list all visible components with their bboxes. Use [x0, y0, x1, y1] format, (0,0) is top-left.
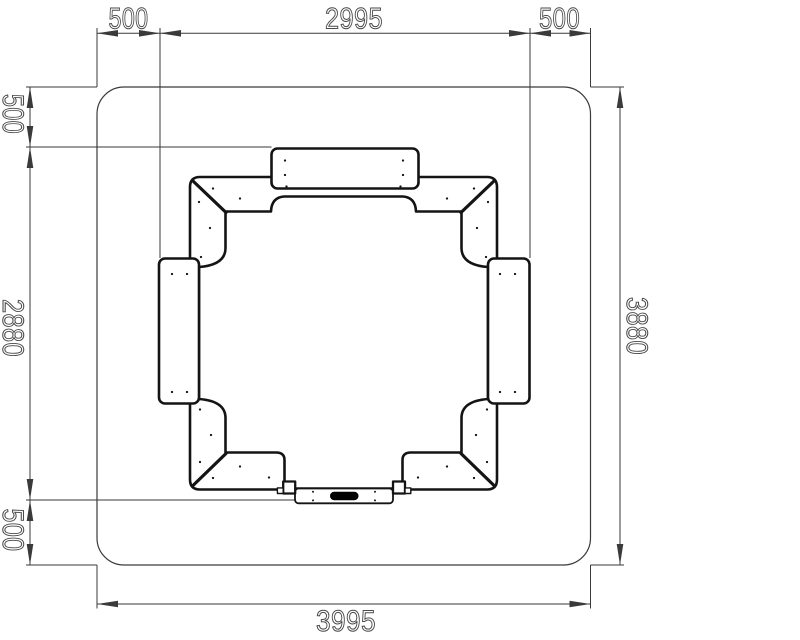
corner-bend-lines: [194, 182, 494, 486]
arrow: [617, 87, 624, 108]
dim-label-left-top-offset: 500: [0, 94, 29, 134]
hole: [312, 491, 314, 493]
hole: [209, 227, 211, 229]
dimension-arrowheads: [27, 30, 624, 607]
arrow: [97, 601, 118, 608]
hole: [198, 201, 200, 203]
connector-clip-left: [283, 482, 295, 494]
hole: [473, 477, 475, 479]
extension-lines: [26, 28, 624, 609]
arrow: [617, 544, 624, 565]
dimension-annotations: [26, 28, 624, 609]
dim-label-bottom-overall: 3995: [316, 605, 376, 638]
hole: [446, 197, 448, 199]
hole: [200, 256, 202, 258]
dim-label-right-overall: 3880: [620, 297, 653, 355]
hole: [446, 465, 448, 467]
hole: [417, 476, 419, 478]
hole: [486, 461, 488, 463]
dim-label-left-span: 2880: [0, 299, 29, 357]
arrow: [509, 30, 530, 37]
dim-label-top-left-offset: 500: [109, 3, 149, 36]
frame-assembly: [159, 149, 530, 504]
hole: [212, 477, 214, 479]
hole: [239, 465, 241, 467]
arrow: [160, 30, 181, 37]
right-mounting-plate: [488, 259, 530, 404]
hole: [212, 187, 214, 189]
dim-label-left-bottom-offset: 500: [0, 509, 29, 552]
hole: [284, 174, 286, 176]
hole: [514, 391, 516, 393]
hole: [186, 391, 188, 393]
hole: [374, 491, 376, 493]
arrow: [27, 479, 34, 500]
hole: [499, 273, 501, 275]
hole: [210, 434, 212, 436]
hole: [485, 256, 487, 258]
hole: [476, 227, 478, 229]
top-mounting-plate: [272, 149, 419, 189]
hole: [514, 273, 516, 275]
hole: [199, 408, 201, 410]
cad-canvas: 500 2995 500 500 2880 500 3880 3995: [0, 0, 800, 640]
hole: [399, 185, 401, 187]
hole: [374, 499, 376, 501]
arrow: [27, 147, 34, 168]
hole: [475, 434, 477, 436]
hole: [473, 187, 475, 189]
dim-label-top-span: 2995: [325, 3, 383, 36]
arrow: [570, 601, 591, 608]
hole: [171, 391, 173, 393]
hole: [268, 476, 270, 478]
connector-tab-left: [277, 488, 283, 494]
connector-clip-right: [393, 482, 405, 494]
hole: [199, 461, 201, 463]
hole: [186, 273, 188, 275]
hole: [312, 499, 314, 501]
hole: [487, 201, 489, 203]
hole: [285, 185, 287, 187]
connector-slot-cutout: [330, 492, 359, 500]
left-mounting-plate: [159, 259, 199, 404]
hole: [402, 159, 404, 161]
dim-label-top-right-offset: 500: [539, 3, 580, 36]
hole: [284, 159, 286, 161]
drawing-sheet: 500 2995 500 500 2880 500 3880 3995: [0, 0, 800, 640]
hole: [402, 174, 404, 176]
connector-tab-right: [405, 488, 411, 494]
hole: [171, 273, 173, 275]
bottom-connector: [277, 482, 410, 504]
hole: [486, 408, 488, 410]
frame-ring-body: [190, 177, 497, 490]
hole: [239, 197, 241, 199]
hole: [499, 391, 501, 393]
